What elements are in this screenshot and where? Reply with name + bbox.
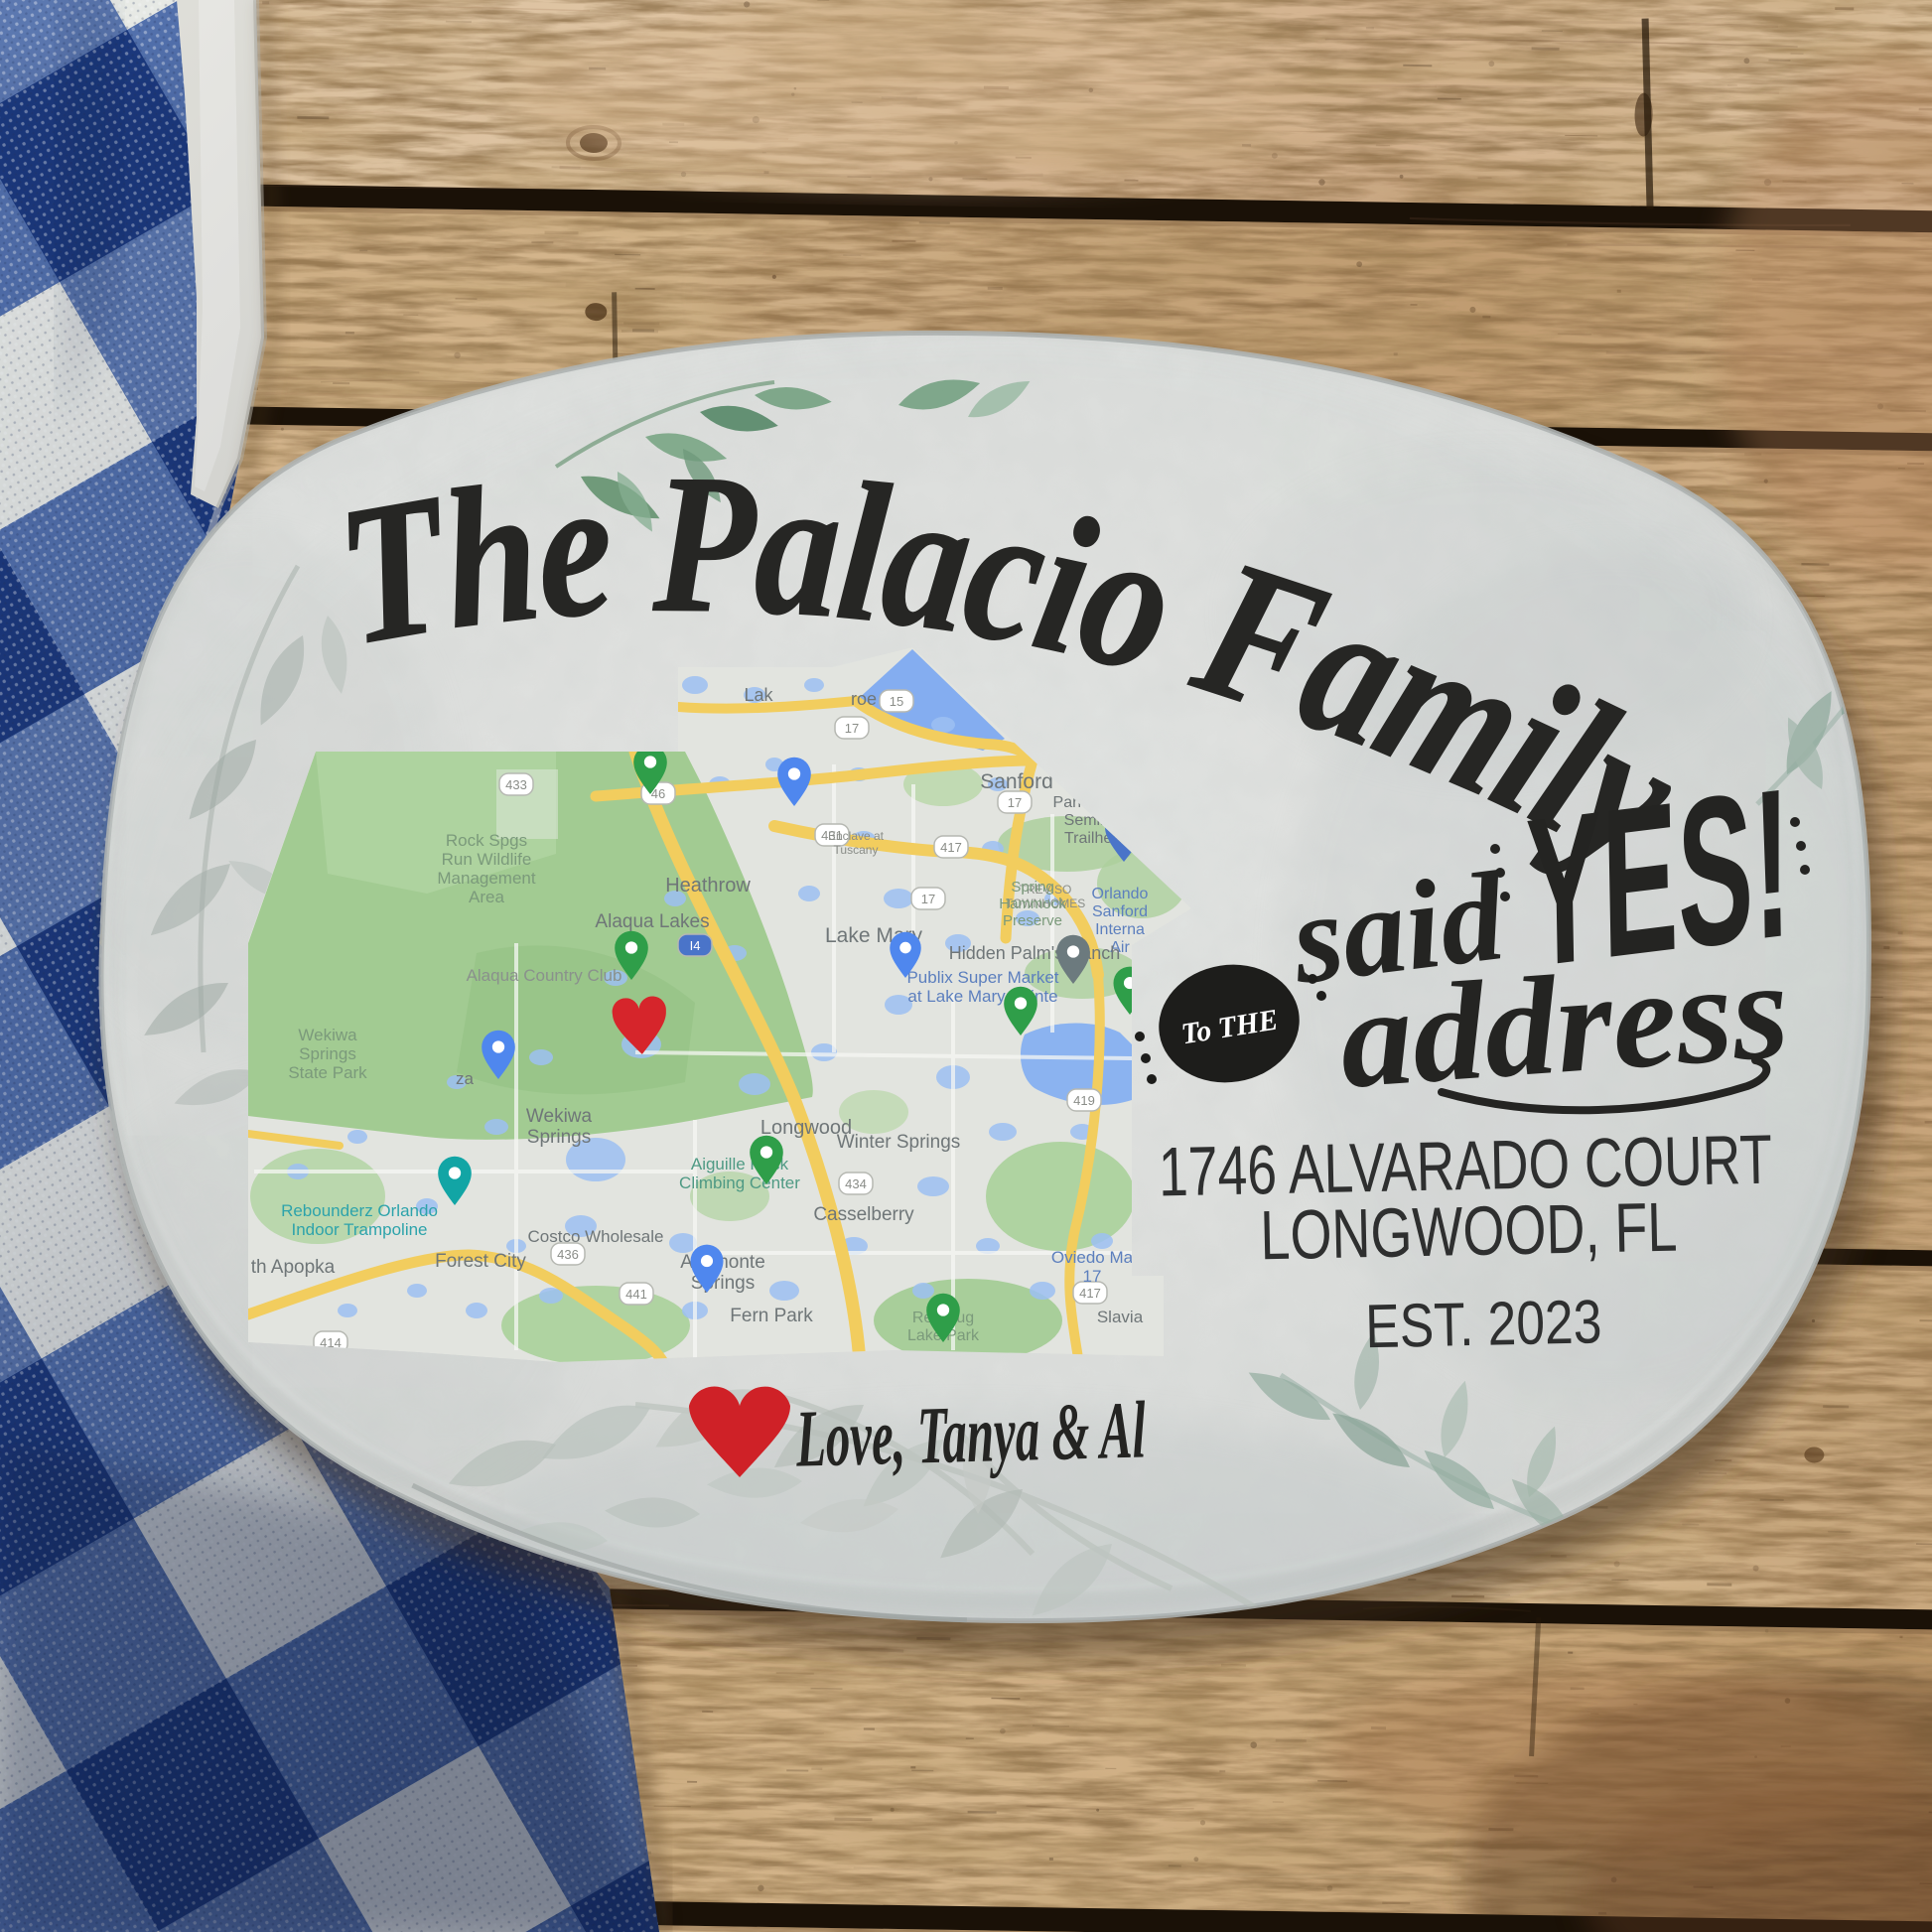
svg-text:Slavia: Slavia [1097, 1308, 1144, 1326]
svg-text:Casselberry: Casselberry [813, 1204, 914, 1225]
svg-text:Enclave atTuscany: Enclave atTuscany [828, 829, 885, 857]
svg-text:417: 417 [1079, 1286, 1101, 1301]
svg-text:436: 436 [557, 1247, 579, 1262]
svg-text:WekiwaSprings: WekiwaSprings [526, 1106, 593, 1148]
svg-text:Rebounderz OrlandoIndoor Tramp: Rebounderz OrlandoIndoor Trampoline [281, 1201, 438, 1239]
svg-text:441: 441 [625, 1287, 647, 1302]
svg-text:Alaqua Lakes: Alaqua Lakes [595, 911, 709, 932]
svg-text:Sanford: Sanford [980, 770, 1053, 793]
svg-text:417: 417 [940, 840, 962, 855]
svg-text:EST. 2023: EST. 2023 [1365, 1288, 1602, 1361]
svg-text:17: 17 [845, 721, 859, 736]
svg-text:419: 419 [1073, 1093, 1095, 1108]
svg-text:17: 17 [921, 892, 935, 906]
svg-text:roe: roe [851, 689, 877, 709]
svg-text:za: za [456, 1069, 475, 1088]
svg-text:17: 17 [1008, 795, 1022, 810]
svg-text:WekiwaSpringsState Park: WekiwaSpringsState Park [288, 1026, 367, 1082]
svg-text:I4: I4 [690, 938, 701, 953]
svg-text:Heathrow: Heathrow [665, 875, 751, 897]
svg-text:Fern Park: Fern Park [730, 1306, 813, 1326]
svg-text:434: 434 [845, 1176, 867, 1191]
svg-text:LONGWOOD, FL: LONGWOOD, FL [1260, 1188, 1679, 1275]
svg-text:Winter Springs: Winter Springs [837, 1132, 961, 1153]
svg-text:15: 15 [890, 694, 903, 709]
svg-text:Love, Tanya & Al: Love, Tanya & Al [794, 1384, 1147, 1483]
svg-text:Alaqua Country Club: Alaqua Country Club [467, 966, 622, 985]
svg-text:Hidden Palm's Ranch: Hidden Palm's Ranch [949, 943, 1121, 963]
svg-text:Forest City: Forest City [435, 1251, 526, 1272]
svg-text:Lak: Lak [744, 685, 773, 705]
svg-text:Aiguille RockClimbing Center: Aiguille RockClimbing Center [679, 1155, 800, 1192]
svg-text:Costco Wholesale: Costco Wholesale [527, 1227, 663, 1246]
svg-text:433: 433 [505, 777, 527, 792]
svg-text:th Apopka: th Apopka [251, 1257, 336, 1278]
